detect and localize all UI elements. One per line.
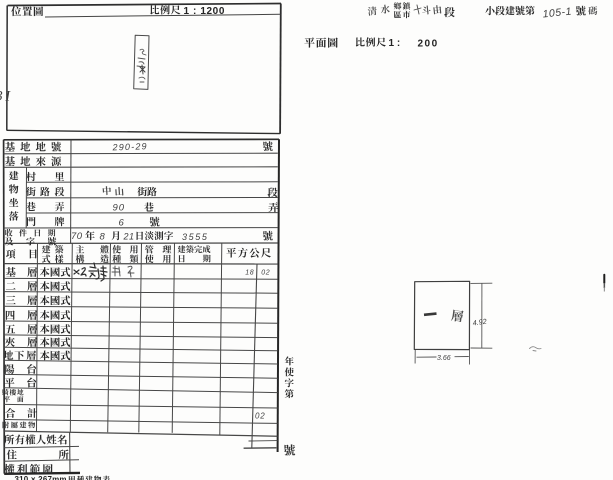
svg-text:200: 200 xyxy=(418,38,439,49)
svg-text:18: 18 xyxy=(245,269,254,276)
svg-text:1 : 1200: 1 : 1200 xyxy=(184,6,226,17)
svg-text:8: 8 xyxy=(100,231,106,242)
svg-text:6: 6 xyxy=(119,218,125,229)
svg-text:90: 90 xyxy=(113,203,126,214)
svg-text:02: 02 xyxy=(255,411,266,420)
svg-text:290-29: 290-29 xyxy=(111,141,148,152)
svg-text:02: 02 xyxy=(261,269,270,276)
svg-text:3.66: 3.66 xyxy=(437,355,451,362)
svg-text:70: 70 xyxy=(71,231,83,242)
svg-text:3I: 3I xyxy=(0,89,13,105)
svg-text:310 × 267mm: 310 × 267mm xyxy=(15,475,67,480)
svg-text:1 :: 1 : xyxy=(389,38,401,49)
svg-text:21: 21 xyxy=(123,231,135,241)
svg-text:3555: 3555 xyxy=(182,232,208,242)
